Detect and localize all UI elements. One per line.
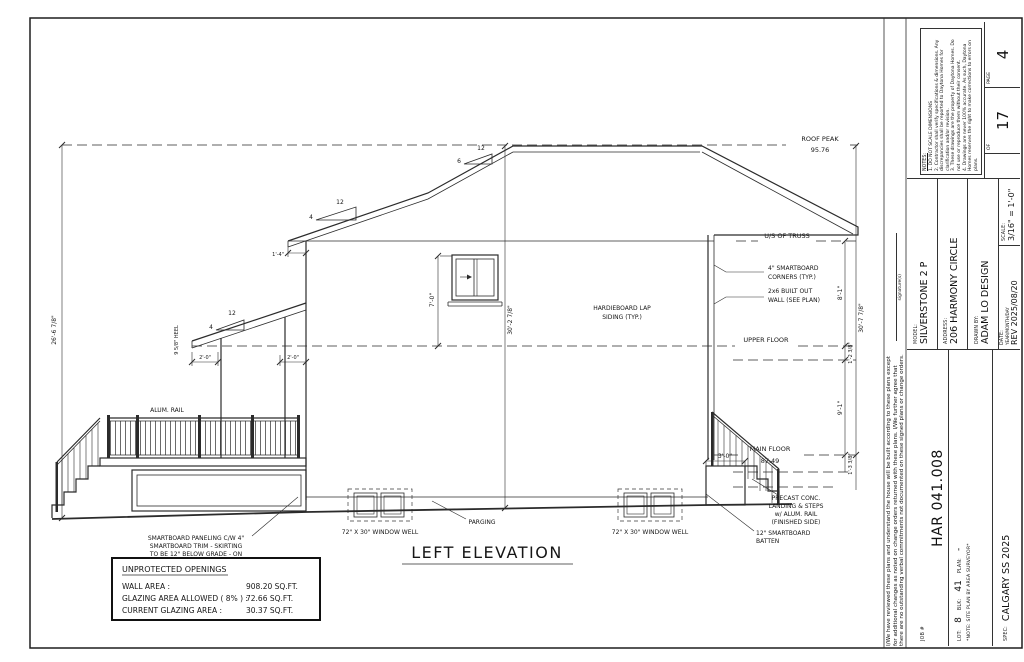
glazing-allowed-label: GLAZING AREA ALLOWED ( 8% ) :	[122, 594, 248, 603]
model-cell: MODEL: SILVERSTONE 2 P	[907, 179, 938, 349]
job-cell: JOB # HAR 041.008	[907, 350, 949, 646]
signature-line[interactable]	[889, 233, 897, 341]
label-builtout-1: 2x6 BUILT OUT	[768, 288, 813, 295]
pitch-rise-porch: 4	[209, 324, 213, 331]
drawing-title: LEFT ELEVATION	[402, 543, 573, 564]
upper-window	[448, 255, 502, 306]
address-cell: ADDRESS: 206 HARMONY CIRCLE	[938, 179, 969, 349]
grade-line	[52, 501, 792, 519]
label-batten-1: 12" SMARTBOARD	[756, 530, 811, 537]
note-4: 4. Drawings are never 100% accurate. As …	[963, 32, 980, 171]
label-precast-3: w/ ALUM. RAIL	[775, 511, 818, 518]
pitch-markers: 12 4 12 6 12 4	[209, 145, 492, 331]
pitch-rise-main-high: 6	[457, 158, 461, 165]
roof-peak-elevation: 95.76	[811, 146, 830, 154]
label-siding-2: SIDING (TYP.)	[602, 314, 642, 321]
signature-label: signature(s)	[898, 274, 903, 300]
notes-box: NOTES: 1. DO NOT SCALE DIMENSIONS 2. Con…	[920, 28, 982, 175]
signature-area[interactable]: signature(s)	[889, 232, 903, 342]
model-value: SILVERSTONE 2 P	[919, 184, 930, 344]
disclaimer-text: I/We have reviewed these plans and under…	[886, 354, 905, 646]
date-value: REV 2025/08/20	[1010, 250, 1019, 345]
roof-peak-label: ROOF PEAK	[801, 135, 839, 143]
drawing-sheet: ROOF PEAK 95.76 U/S OF TRUSS UPPER FLOOR…	[0, 0, 1024, 662]
of-label: OF	[987, 144, 992, 150]
lot-value: 8	[954, 617, 964, 623]
label-skirting-2: SMARTBOARD TRIM - SKIRTING	[150, 543, 243, 550]
heel-dimension: 9 5/8" HEEL	[174, 325, 180, 355]
wall-area-value: 908.20 SQ.FT.	[246, 582, 298, 591]
plan-value: -	[954, 548, 964, 551]
page-label: PAGE	[987, 72, 992, 84]
pitch-rise-main-low: 4	[309, 214, 313, 221]
page-value: 4	[994, 50, 1012, 60]
walls	[306, 235, 714, 500]
dim-upper-storey: 8'-1"	[837, 286, 844, 300]
date-cell: DATE: YEAR/MONTH/DAY REV 2025/08/20	[999, 245, 1021, 349]
spec-value: CALGARY SS 2025	[1001, 535, 1012, 621]
openings-table: UNPROTECTED OPENINGS WALL AREA : 908.20 …	[112, 558, 320, 620]
dim-main-floor-depth: 1'-3 3/8"	[848, 453, 854, 474]
of-cell: OF 17	[985, 88, 1020, 154]
page-row: OF 17 PAGE 4	[984, 22, 1020, 178]
dim-overhang-right: 2'-0"	[287, 355, 299, 361]
lot-cell: LOT: 8 BLK: 41 PLAN: - *NOTE: SITE PLAN …	[949, 350, 993, 646]
label-precast-4: (FINISHED SIDE)	[772, 519, 821, 526]
label-alum-rail: ALUM. RAIL	[150, 407, 184, 414]
page-cell: PAGE 4	[985, 22, 1020, 88]
dim-center-height: 30'-2 7/8"	[507, 305, 514, 335]
blk-value: 41	[954, 580, 964, 591]
spec-label: SPEC:	[1004, 626, 1009, 641]
dim-main-storey: 9'-1"	[837, 401, 844, 415]
upper-floor-label: UPPER FLOOR	[743, 336, 789, 344]
blk-label: BLK:	[958, 599, 963, 611]
current-glazing-label: CURRENT GLAZING AREA :	[122, 606, 222, 615]
dim-window-height: 7'-0"	[429, 293, 436, 307]
title-block: JOB # HAR 041.008 LOT: 8 BLK: 41 PLAN: -…	[907, 22, 1020, 646]
label-siding-1: HARDIEBOARD LAP	[593, 305, 651, 312]
label-builtout-2: WALL (SEE PLAN)	[768, 297, 820, 304]
label-skirting-3: TO BE 12" BELOW GRADE - ON	[149, 551, 242, 558]
note-3: 3. These drawings are the property of Da…	[951, 32, 962, 171]
wall-area-label: WALL AREA :	[122, 582, 170, 591]
disclaimer-line-1: I/We have reviewed these plans and under…	[886, 354, 892, 646]
dim-landing-depth: 3'-0"	[718, 453, 732, 460]
title-block-job-section: JOB # HAR 041.008 LOT: 8 BLK: 41 PLAN: -…	[907, 349, 1020, 646]
elevation-title: LEFT ELEVATION	[411, 543, 563, 562]
label-window-well-left: 72" X 30" WINDOW WELL	[342, 529, 419, 536]
title-block-info-section: MODEL: SILVERSTONE 2 P ADDRESS: 206 HARM…	[907, 178, 1020, 349]
drawn-by-cell: DRAWN BY: ADAM LO DESIGN	[968, 179, 999, 349]
right-steps	[706, 412, 780, 531]
slider-arrow-icon	[467, 275, 472, 280]
dim-overhang-left: 2'-0"	[199, 355, 211, 361]
glazing-allowed-value: 72.66 SQ.FT.	[246, 594, 293, 603]
label-precast-1: PRECAST CONC.	[772, 495, 821, 502]
scale-value: 3/16" = 1'-0"	[1007, 183, 1016, 241]
address-value: 206 HARMONY CIRCLE	[949, 184, 960, 344]
elevation-drawing: ROOF PEAK 95.76 U/S OF TRUSS UPPER FLOOR…	[0, 0, 1024, 662]
dimensions: 26'-6 7/8" 30'-2 7/8" 8'-1" 1'-2 3/8" 9'…	[51, 142, 865, 521]
current-glazing-value: 30.37 SQ.FT.	[246, 606, 293, 615]
pitch-run-main-low: 12	[336, 199, 344, 206]
disclaimer-strip: I/We have reviewed these plans and under…	[886, 22, 906, 646]
spec-cell: SPEC: CALGARY SS 2025	[993, 350, 1020, 646]
job-label: JOB #	[921, 626, 926, 641]
label-batten-2: BATTEN	[756, 538, 779, 545]
label-corners-1: 4" SMARTBOARD	[768, 265, 819, 272]
site-plan-note: *NOTE: SITE PLAN BY AREA SURVEYOR*	[967, 355, 972, 641]
scale-cell: SCALE: 3/16" = 1'-0"	[999, 179, 1021, 245]
label-window-well-right: 72" X 30" WINDOW WELL	[612, 529, 689, 536]
label-corners-2: CORNERS (TYP.)	[768, 274, 816, 281]
label-precast-2: LANDING & STEPS	[769, 503, 824, 510]
title-block-notes-section: NOTES: 1. DO NOT SCALE DIMENSIONS 2. Con…	[907, 22, 1020, 178]
annotations: 4" SMARTBOARD CORNERS (TYP.) 2x6 BUILT O…	[148, 265, 824, 566]
plan-label: PLAN:	[958, 558, 963, 573]
drawn-by-value: ADAM LO DESIGN	[980, 184, 991, 344]
us-truss-label: U/S OF TRUSS	[764, 232, 810, 240]
label-skirting-1: SMARTBOARD PANELING C/W 4"	[148, 535, 245, 542]
label-parging: PARGING	[468, 519, 495, 526]
pitch-run-porch: 12	[228, 310, 236, 317]
lot-label: LOT:	[958, 630, 963, 641]
pitch-run-main-high: 12	[477, 145, 485, 152]
of-value: 17	[994, 111, 1012, 130]
openings-title: UNPROTECTED OPENINGS	[122, 565, 226, 574]
dim-overall-right: 30'-7 7/8"	[858, 303, 865, 333]
dim-eave-offset: 1'-4"	[272, 252, 284, 258]
window-wells	[348, 489, 682, 521]
job-number: HAR 041.008	[930, 355, 946, 641]
disclaimer-line-3: there are no outstanding verbal commitme…	[899, 354, 905, 646]
dim-upper-floor-depth: 1'-2 3/8"	[848, 342, 854, 363]
dim-overall-left: 26'-6 7/8"	[51, 315, 58, 345]
note-2: 2. Contractor shall verify specification…	[935, 32, 952, 171]
